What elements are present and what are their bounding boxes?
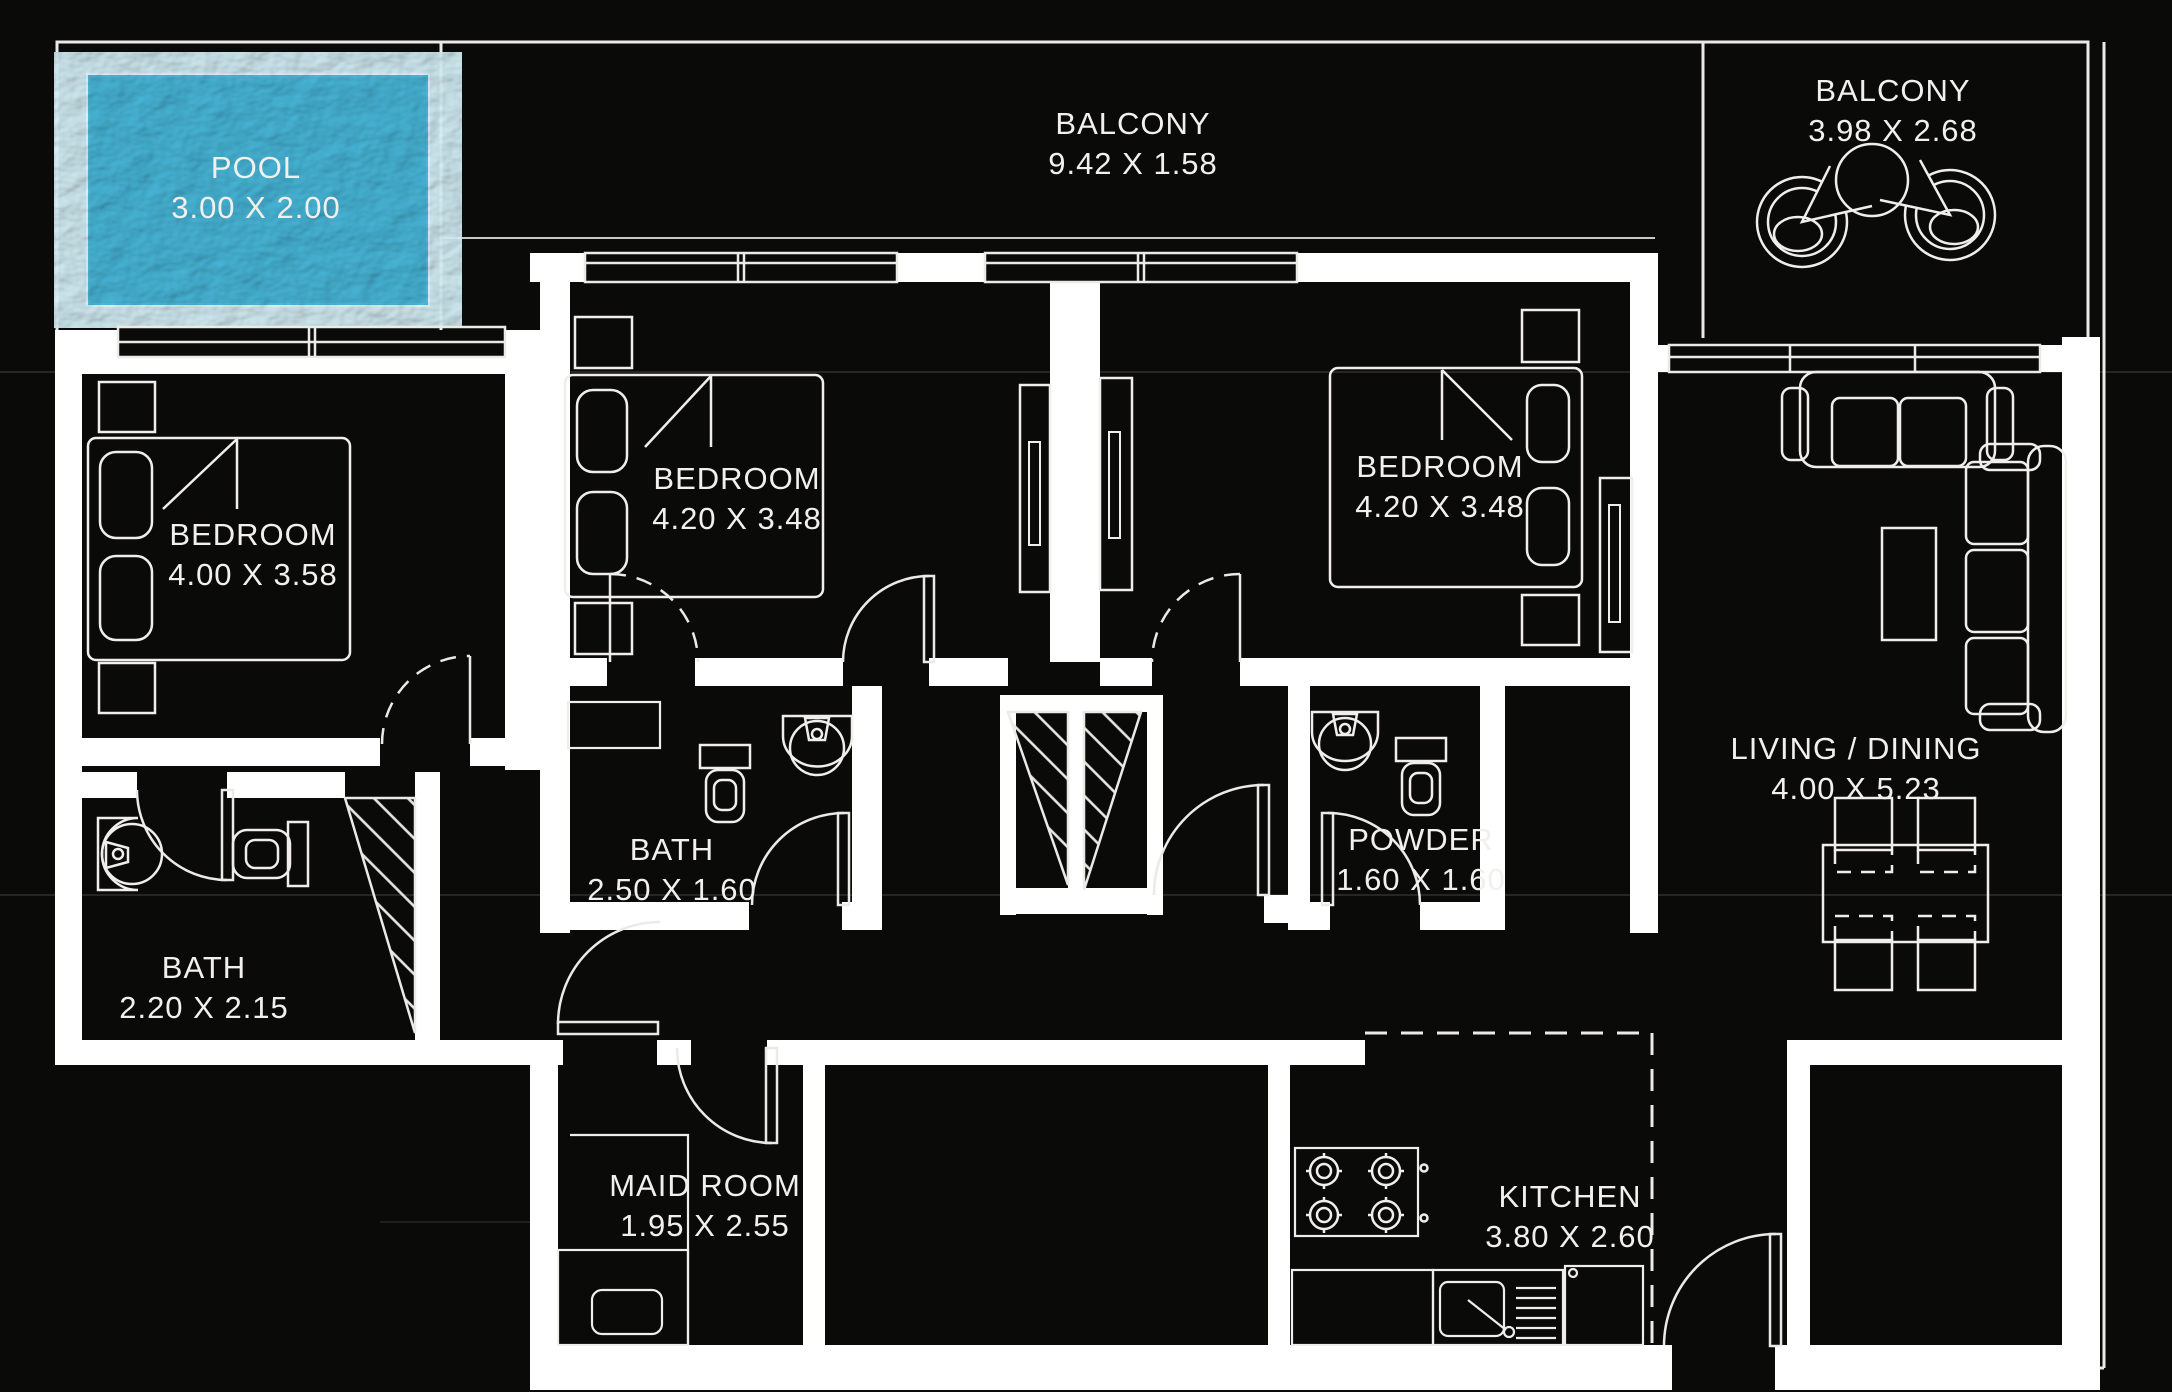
balcony-furniture	[1757, 144, 1995, 267]
wardrobe-bedroom-middle	[1020, 385, 1050, 592]
kitchen-sink-icon	[1440, 1282, 1556, 1338]
burners	[1306, 1153, 1404, 1233]
floor-plan: POOL 3.00 X 2.00 BALCONY 9.42 X 1.58 BAL…	[0, 0, 2172, 1392]
sink-icon-bath-left	[98, 818, 162, 890]
toilet-icon-bath-middle	[700, 745, 750, 822]
toilet-icon-powder	[1396, 738, 1446, 815]
dining-set	[1823, 798, 1988, 990]
bed-bedroom-middle	[565, 317, 823, 654]
bed-maid-room	[558, 1250, 688, 1345]
sofa-three-seat	[1966, 444, 2066, 732]
bed-bedroom-left	[88, 382, 350, 713]
sofa-two-seat	[1782, 372, 2013, 467]
coffee-table	[1882, 528, 1936, 640]
door-maid-room	[677, 1048, 777, 1143]
door-entry	[1664, 1234, 1781, 1346]
round-chair-right	[1880, 160, 1995, 260]
kitchen-dashed-boundary	[1365, 1033, 1652, 1345]
door-maid-corridor	[558, 922, 660, 1034]
door-powder	[1322, 813, 1420, 905]
kitchen-counter	[1292, 1266, 1643, 1345]
wardrobe-bedroom-right	[1100, 378, 1632, 652]
sink-icon-powder	[1312, 712, 1378, 770]
bed-bedroom-right	[1330, 310, 1582, 645]
stove-icon	[1295, 1148, 1428, 1236]
door-bath-middle	[752, 813, 849, 905]
shower-bath-middle	[568, 702, 660, 748]
door-hall-powder	[1154, 785, 1269, 895]
door-bath-left	[137, 790, 233, 880]
door-bedroom-left	[382, 656, 470, 744]
door-bedroom-middle	[610, 574, 698, 662]
door-hall-middle	[843, 576, 934, 662]
floor-plan-drawing	[0, 0, 2172, 1392]
toilet-icon-bath-left	[233, 822, 308, 886]
door-bedroom-right	[1152, 574, 1240, 662]
window-bedroom-right	[985, 253, 1297, 282]
sink-icon-bath-middle	[783, 716, 852, 775]
round-chair-left	[1757, 166, 1872, 267]
round-table	[1836, 144, 1908, 216]
pool	[88, 75, 428, 305]
maid-room-partition	[570, 1135, 688, 1345]
window-pool-terrace	[118, 327, 505, 357]
shaft-hatch	[345, 712, 1141, 1033]
doors	[137, 574, 1781, 1346]
window-living	[1669, 345, 2040, 372]
window-bedroom-middle	[585, 253, 897, 282]
